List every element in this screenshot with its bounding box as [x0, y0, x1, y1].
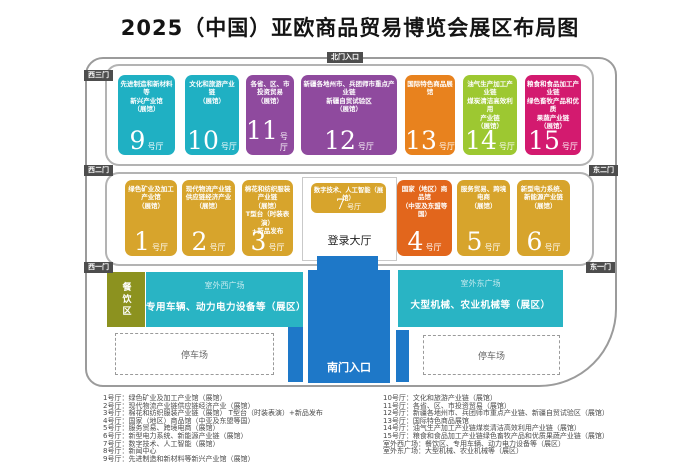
hall-15: 粮食和食品加工产业链 绿色畜牧产品和优质 果蔬产业链 （展馆） 15号厅	[525, 75, 581, 155]
hall-11: 各省、区、市 投资贸易 （展馆） 11号厅	[246, 75, 294, 155]
hall-7: 数字技术、人工智能（展馆） 7号厅	[311, 183, 386, 213]
south-gate-entrance: 南门入口	[308, 270, 390, 383]
hall-4: 国家（地区）商品馆 （中亚及东盟等国） 4号厅	[397, 180, 452, 256]
hall-13-number: 13	[405, 128, 437, 153]
hall-9-number: 9	[130, 128, 146, 153]
hall-1-number: 1	[134, 229, 150, 254]
hall-5-number: 5	[467, 229, 483, 254]
outdoor-west-plaza: 室外西广场 专用车辆、动力电力设备等（展区）	[146, 272, 303, 327]
hall-6-name: 新型电力系统、 新能源产业链 （展馆）	[517, 180, 570, 210]
dining-area-label: 餐饮区	[120, 282, 133, 318]
east-plaza-title: 室外东广场	[398, 278, 563, 289]
hall-12: 新疆各地州市、兵团师市重点产业链 新疆自贸试验区 （展馆） 12号厅	[301, 75, 397, 155]
dining-area: 餐饮区	[107, 272, 145, 327]
hall-3-number: 3	[251, 229, 267, 254]
gate-label-west3: 西三门	[84, 70, 113, 81]
hall-3: 棉花和纺织服装产业链 （展馆） T型台（时装表演） +新品发布 3号厅	[242, 180, 293, 256]
legend-column-left: 1号厅：绿色矿业及加工产业馆（展馆） 2号厅：现代物流产业链供应链经济产业（展馆…	[103, 395, 378, 463]
legend-item: 9号厅：先进制造和新材料等新兴产业馆（展馆）	[103, 456, 378, 464]
hall-9: 先进制造和新材料等 新兴产业馆 （展馆） 9号厅	[118, 75, 175, 155]
parking-lot-east: 停车场	[423, 335, 560, 375]
hall-2-number: 2	[192, 229, 208, 254]
hall-10-name: 文化和旅游产业链 （展馆）	[185, 75, 239, 105]
hall-3-name: 棉花和纺织服装产业链 （展馆） T型台（时装表演） +新品发布	[242, 180, 293, 236]
west-plaza-desc: 专用车辆、动力电力设备等（展区）	[146, 299, 303, 313]
hall-13: 国际特色商品展馆 13号厅	[405, 75, 455, 155]
gate-label-east1: 东一门	[586, 262, 615, 273]
hall-6-number: 6	[527, 229, 543, 254]
hall-4-name: 国家（地区）商品馆 （中亚及东盟等国）	[397, 180, 452, 219]
east-plaza-desc: 大型机械、农业机械等（展区）	[398, 297, 563, 311]
hall-11-number: 11	[246, 118, 278, 143]
hall-14: 油气生产加工产业链 煤炭清洁高效利用 产业链 （展馆） 14号厅	[463, 75, 517, 155]
hall-1: 绿色矿业及加工 产业馆 （展馆） 1号厅	[125, 180, 177, 256]
hall-10-number: 10	[187, 128, 219, 153]
legend-column-right: 10号厅：文化和旅游产业链（展馆） 11号厅：各省、区、市投资贸易（展馆） 12…	[383, 395, 683, 456]
page-title: 2025（中国）亚欧商品贸易博览会展区布局图	[0, 12, 700, 42]
hall-9-name: 先进制造和新材料等 新兴产业馆 （展馆）	[118, 75, 175, 114]
hall-14-number: 14	[465, 128, 497, 153]
west-plaza-title: 室外西广场	[146, 280, 303, 291]
gate-label-north: 北门入口	[327, 52, 363, 63]
legend-item: 室外东广场：大型机械、农业机械等（展区）	[383, 448, 683, 456]
hall-1-name: 绿色矿业及加工 产业馆 （展馆）	[125, 180, 177, 210]
hall-2-name: 现代物流产业链 供应链经济产业 （展馆）	[182, 180, 235, 210]
hall-13-name: 国际特色商品展馆	[405, 75, 455, 97]
registration-lobby-label: 登录大厅	[303, 232, 396, 248]
gate-label-east2: 东二门	[589, 165, 618, 176]
hall-4-number: 4	[408, 229, 424, 254]
hall-12-name: 新疆各地州市、兵团师市重点产业链 新疆自贸试验区 （展馆）	[301, 75, 397, 114]
hall-14-name: 油气生产加工产业链 煤炭清洁高效利用 产业链 （展馆）	[463, 75, 517, 131]
lobby-south-corridor	[317, 256, 378, 271]
hall-11-name: 各省、区、市 投资贸易 （展馆）	[246, 75, 294, 105]
hall-12-number: 12	[324, 128, 356, 153]
parking-lot-west: 停车场	[115, 333, 274, 375]
hall-7-number: 7	[336, 198, 345, 212]
south-walkway-east	[396, 330, 409, 382]
expo-layout-map: { "title": "2025（中国）亚欧商品贸易博览会展区布局图", "ga…	[0, 0, 700, 470]
registration-hall-panel: 数字技术、人工智能（展馆） 7号厅 登录大厅	[302, 177, 397, 261]
hall-15-number: 15	[528, 128, 560, 153]
hall-6: 新型电力系统、 新能源产业链 （展馆） 6号厅	[517, 180, 570, 256]
south-gate-label: 南门入口	[308, 359, 390, 375]
gate-label-west1: 西一门	[84, 262, 113, 273]
gate-label-west2: 西二门	[84, 165, 113, 176]
hall-5-name: 服务贸易、跨境电商 （展馆）	[457, 180, 510, 210]
hall-15-name: 粮食和食品加工产业链 绿色畜牧产品和优质 果蔬产业链 （展馆）	[525, 75, 581, 131]
hall-10: 文化和旅游产业链 （展馆） 10号厅	[185, 75, 239, 155]
hall-2: 现代物流产业链 供应链经济产业 （展馆） 2号厅	[182, 180, 235, 256]
hall-5: 服务贸易、跨境电商 （展馆） 5号厅	[457, 180, 510, 256]
outdoor-east-plaza: 室外东广场 大型机械、农业机械等（展区）	[398, 270, 563, 327]
